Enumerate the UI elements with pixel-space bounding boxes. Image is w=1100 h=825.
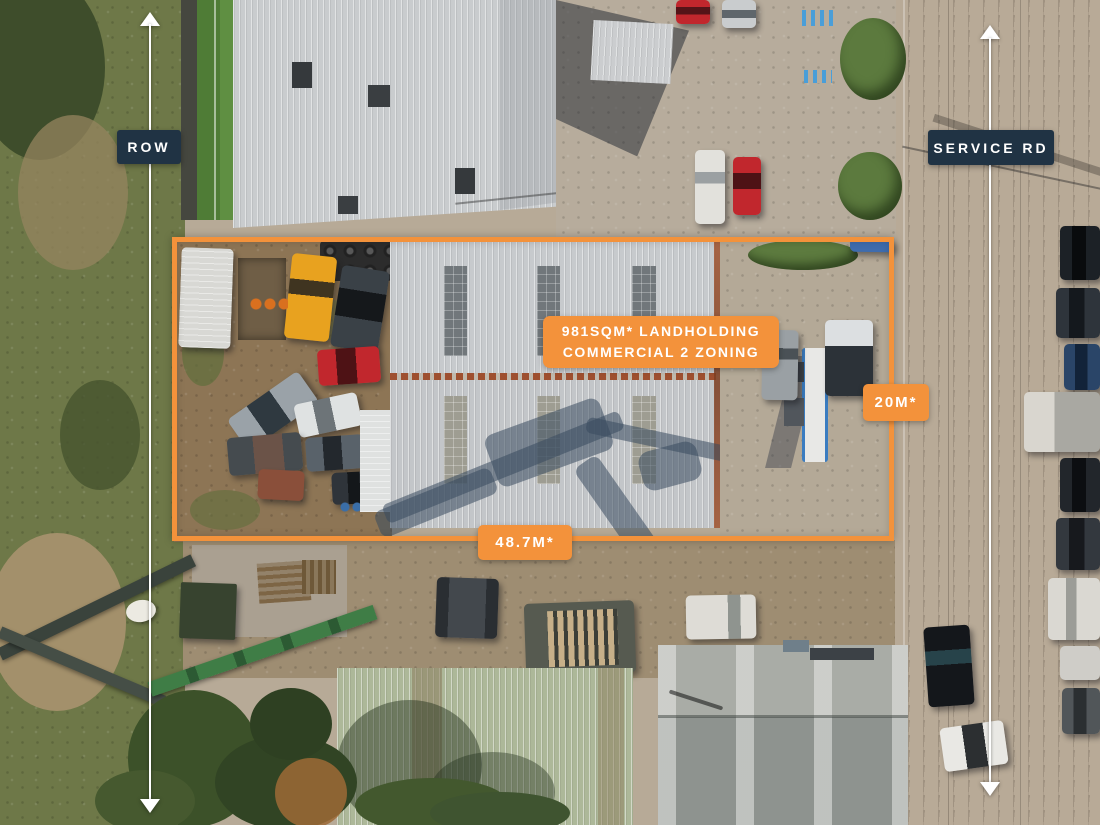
small-roof-north bbox=[590, 20, 673, 84]
parked-ute-white bbox=[695, 150, 725, 224]
grey-shed-vent bbox=[783, 640, 809, 652]
property-boundary-outline bbox=[172, 237, 894, 541]
dark-green-shack bbox=[179, 582, 237, 640]
row-road-label: ROW bbox=[117, 130, 181, 164]
right-car-2 bbox=[1056, 288, 1100, 338]
landholding-badge: 981SQM* LANDHOLDING COMMERCIAL 2 ZONING bbox=[543, 316, 779, 368]
depth-dimension-text: 20M* bbox=[874, 394, 917, 411]
roof-vent-2 bbox=[368, 85, 390, 107]
row-road-label-text: ROW bbox=[127, 139, 170, 155]
sports-turf bbox=[197, 0, 239, 220]
road-joint-line-2 bbox=[1020, 0, 1021, 825]
pallet-stack-2 bbox=[302, 560, 336, 594]
right-car-9 bbox=[1062, 688, 1100, 734]
scrub-patch bbox=[60, 380, 140, 490]
landholding-line-1: 981SQM* LANDHOLDING bbox=[562, 321, 760, 342]
right-arrow-down-icon bbox=[980, 782, 1000, 796]
grey-shed-stripes bbox=[658, 645, 908, 825]
turf-line bbox=[214, 0, 216, 220]
parked-car-red-top bbox=[676, 0, 710, 24]
left-arrow-down-icon bbox=[140, 799, 160, 813]
dark-machine bbox=[435, 577, 499, 639]
disabled-bay-marking-1 bbox=[802, 10, 836, 26]
disabled-bay-marking-2 bbox=[804, 70, 832, 83]
right-white-van-2 bbox=[1060, 646, 1100, 680]
aerial-property-photo: ROW SERVICE RD 981SQM* LANDHOLDING COMME… bbox=[0, 0, 1100, 825]
grey-shed-sign-band bbox=[810, 648, 874, 660]
hedge-north-1 bbox=[840, 18, 906, 100]
parked-car-red-2 bbox=[733, 157, 761, 215]
right-car-5 bbox=[1060, 458, 1100, 512]
right-car-3-blue bbox=[1064, 344, 1100, 390]
dead-tree-orange bbox=[275, 758, 347, 825]
road-white-car bbox=[939, 720, 1009, 772]
frontage-dimension-badge: 48.7M* bbox=[478, 525, 572, 560]
right-arrow-up-icon bbox=[980, 25, 1000, 39]
dirt-trail-upper bbox=[18, 115, 128, 270]
landholding-line-2: COMMERCIAL 2 ZONING bbox=[563, 342, 760, 363]
green-shed-streak-2 bbox=[598, 668, 624, 825]
frontage-dimension-text: 48.7M* bbox=[495, 534, 555, 551]
hedge-north-2 bbox=[838, 152, 902, 220]
grey-shed-ridge bbox=[658, 715, 908, 718]
ladder-rack bbox=[547, 609, 619, 667]
roof-vent-1 bbox=[292, 62, 312, 88]
tree-cluster-3 bbox=[95, 770, 195, 825]
service-rd-road-label-text: SERVICE RD bbox=[933, 140, 1048, 156]
roof-vent-3 bbox=[455, 168, 475, 194]
service-rd-road-label: SERVICE RD bbox=[928, 130, 1054, 165]
right-car-1 bbox=[1060, 226, 1100, 280]
road-black-sedan bbox=[923, 624, 974, 707]
right-white-van bbox=[1048, 578, 1100, 640]
right-white-truck bbox=[1024, 392, 1100, 452]
parked-car-silver-top bbox=[722, 0, 756, 28]
roof-vent-4 bbox=[338, 196, 358, 214]
depth-dimension-badge: 20M* bbox=[863, 384, 929, 421]
white-van-south bbox=[686, 594, 757, 639]
laneway-dark bbox=[181, 0, 197, 220]
tree-cluster-4 bbox=[250, 688, 332, 760]
right-car-6 bbox=[1056, 518, 1100, 570]
